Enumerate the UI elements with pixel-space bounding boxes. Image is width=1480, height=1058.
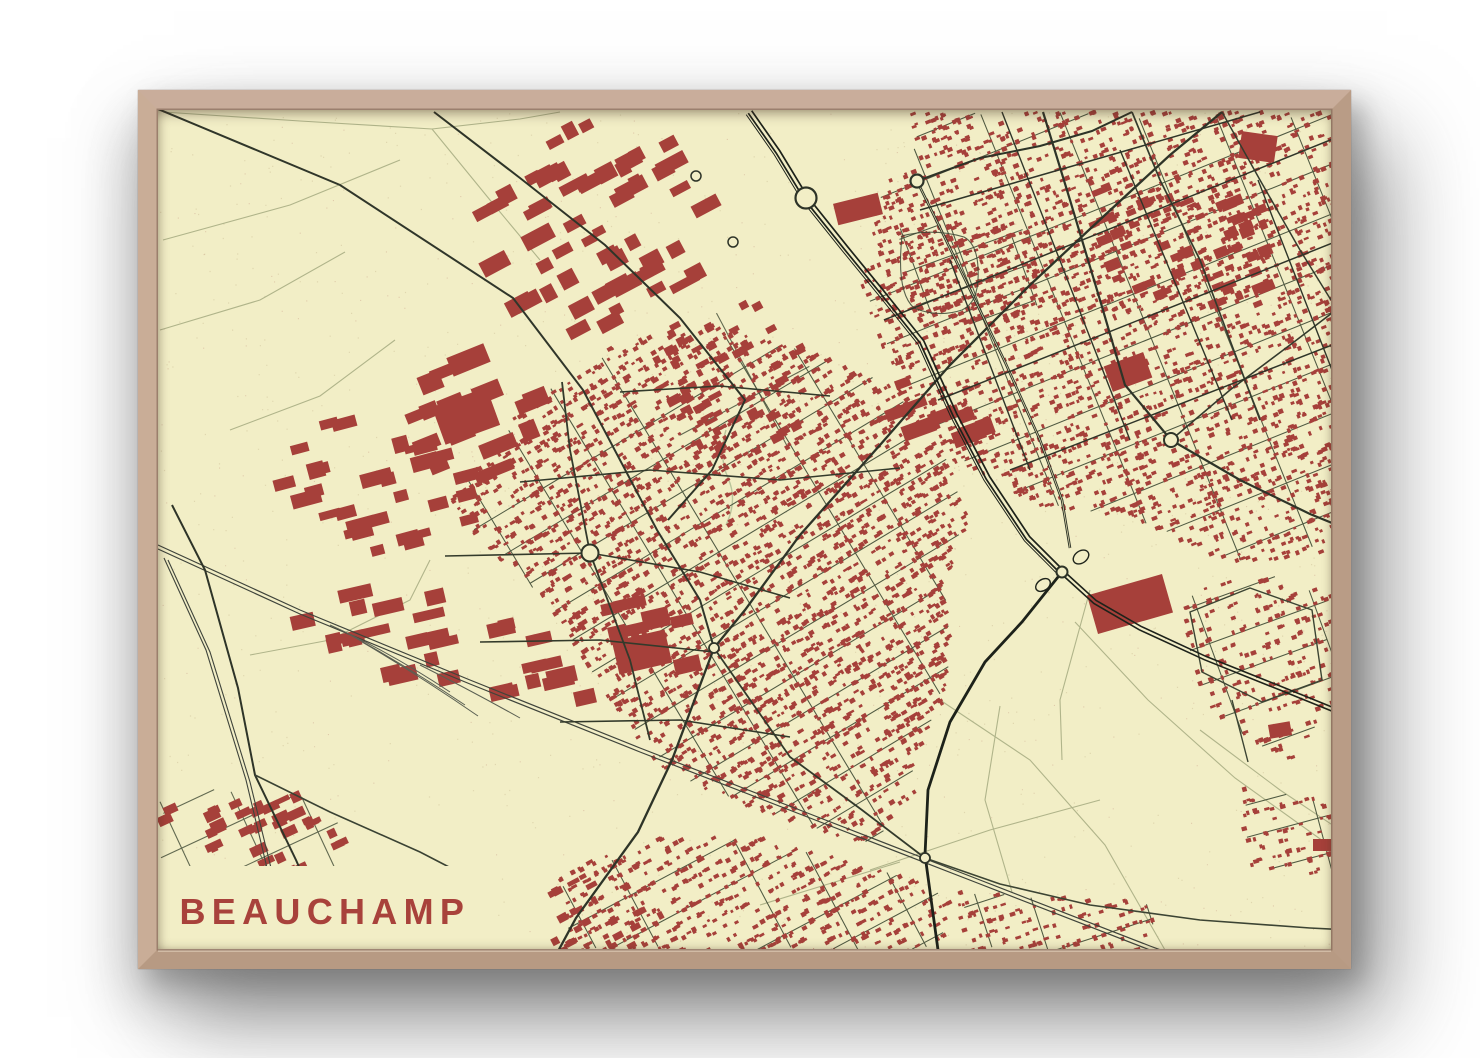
svg-text:BEAUCHAMP: BEAUCHAMP	[180, 891, 471, 932]
